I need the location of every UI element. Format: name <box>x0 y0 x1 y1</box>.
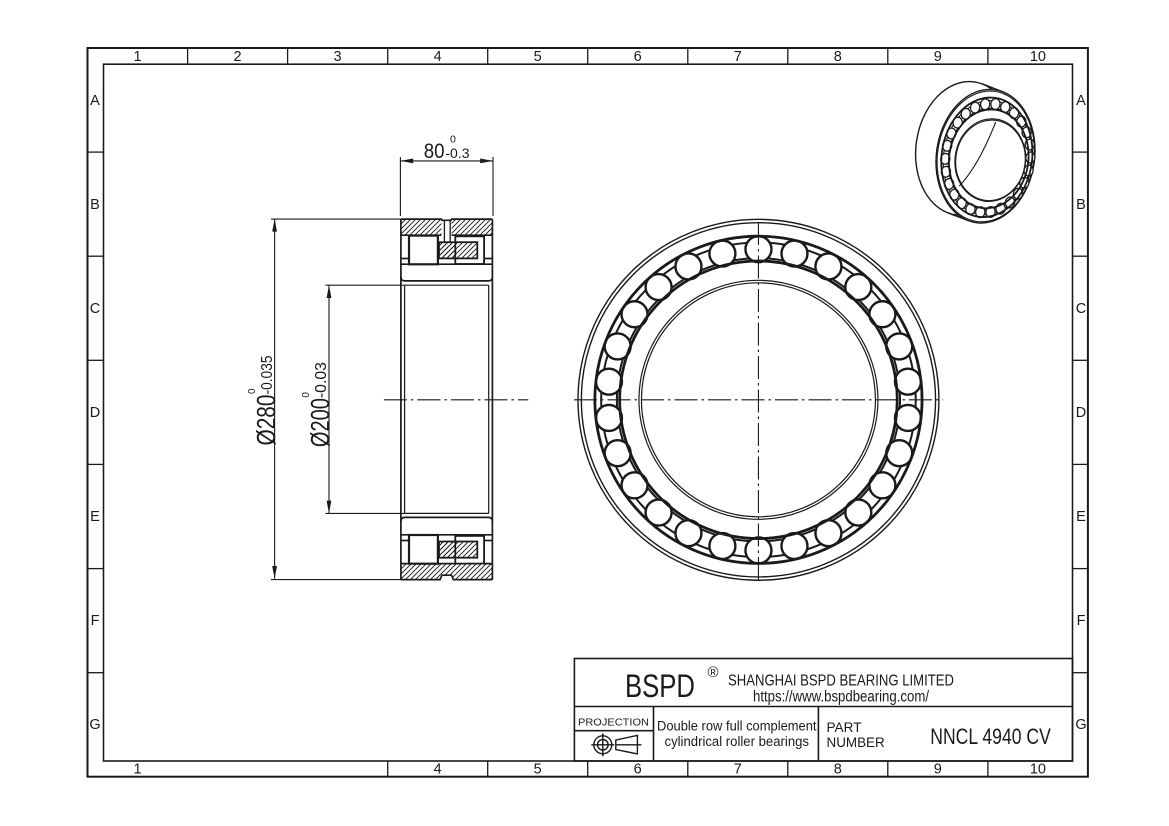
svg-text:E: E <box>1076 509 1086 525</box>
svg-text:C: C <box>1076 301 1086 317</box>
svg-text:F: F <box>91 613 100 629</box>
svg-text:4: 4 <box>434 49 442 65</box>
svg-text:D: D <box>90 405 100 421</box>
svg-text:6: 6 <box>634 762 642 778</box>
svg-text:A: A <box>1076 93 1086 109</box>
svg-text:-0.035: -0.035 <box>259 355 276 394</box>
svg-text:NUMBER: NUMBER <box>827 734 885 750</box>
svg-text:PART: PART <box>827 719 862 735</box>
svg-text:5: 5 <box>534 762 542 778</box>
svg-text:-0.3: -0.3 <box>445 145 469 161</box>
svg-text:B: B <box>90 197 100 213</box>
svg-text:A: A <box>90 93 100 109</box>
svg-text:cylindrical roller bearings: cylindrical roller bearings <box>665 734 810 749</box>
svg-text:-0.03: -0.03 <box>313 362 330 398</box>
svg-text:7: 7 <box>734 762 742 778</box>
svg-text:1: 1 <box>133 49 141 65</box>
svg-text:8: 8 <box>834 762 842 778</box>
svg-text:0: 0 <box>247 388 258 394</box>
svg-text:PROJECTION: PROJECTION <box>578 717 649 729</box>
svg-text:G: G <box>89 717 100 733</box>
svg-text:10: 10 <box>1030 762 1046 778</box>
svg-text:Ø200: Ø200 <box>305 398 335 447</box>
svg-text:NNCL 4940 CV: NNCL 4940 CV <box>930 724 1051 749</box>
svg-text:E: E <box>90 509 100 525</box>
svg-text:https://www.bspdbearing.com/: https://www.bspdbearing.com/ <box>753 689 930 706</box>
svg-text:1: 1 <box>133 762 141 778</box>
svg-text:BSPD: BSPD <box>625 668 695 704</box>
svg-text:G: G <box>1075 717 1086 733</box>
svg-text:8: 8 <box>834 49 842 65</box>
svg-text:0: 0 <box>450 134 456 146</box>
svg-text:SHANGHAI BSPD BEARING LIMITED: SHANGHAI BSPD BEARING LIMITED <box>728 673 954 690</box>
svg-text:®: ® <box>708 664 719 681</box>
svg-text:B: B <box>1076 197 1086 213</box>
svg-text:0: 0 <box>301 392 312 398</box>
svg-text:2: 2 <box>234 49 242 65</box>
svg-text:Double row full complement: Double row full complement <box>657 719 817 734</box>
svg-text:Ø280: Ø280 <box>251 395 281 446</box>
svg-text:3: 3 <box>334 49 342 65</box>
svg-text:9: 9 <box>934 762 942 778</box>
svg-text:6: 6 <box>634 49 642 65</box>
svg-text:10: 10 <box>1030 49 1046 65</box>
svg-text:5: 5 <box>534 49 542 65</box>
svg-text:7: 7 <box>734 49 742 65</box>
svg-text:D: D <box>1076 405 1086 421</box>
svg-text:4: 4 <box>434 762 442 778</box>
svg-text:F: F <box>1077 613 1086 629</box>
svg-text:C: C <box>90 301 100 317</box>
svg-text:9: 9 <box>934 49 942 65</box>
svg-text:80: 80 <box>424 140 445 163</box>
